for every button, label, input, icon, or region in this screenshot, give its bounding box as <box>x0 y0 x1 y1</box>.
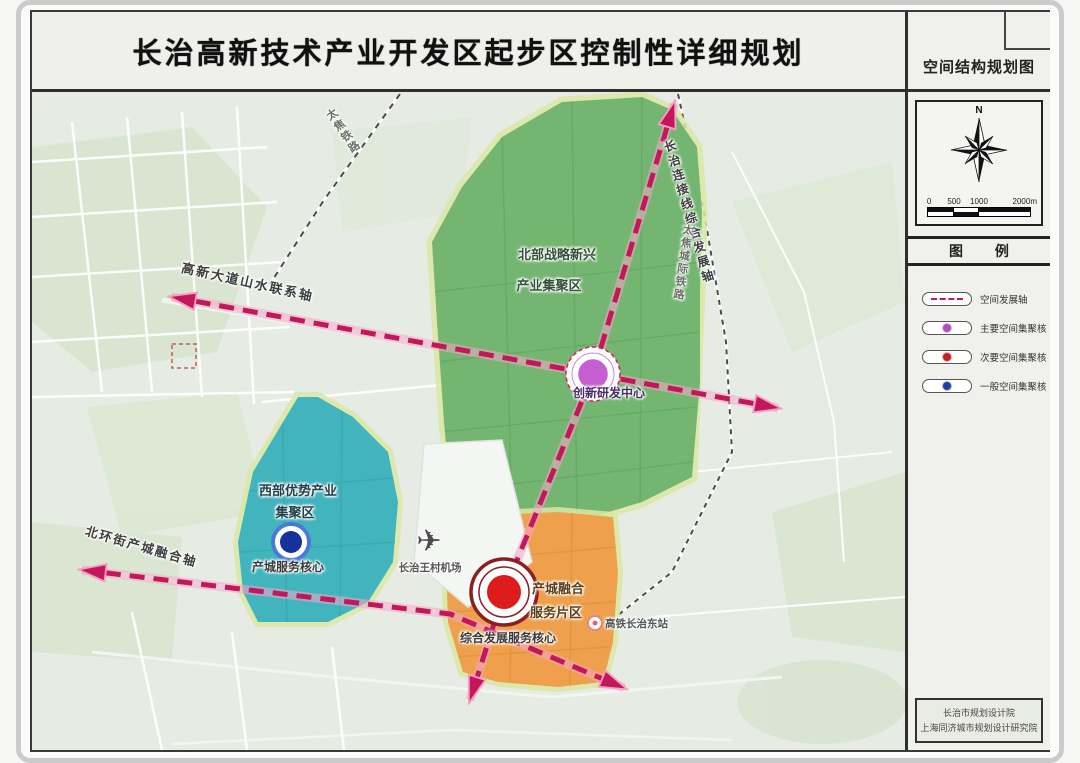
blue-dot-symbol <box>922 379 972 393</box>
map-canvas: 北部战略新兴 产业集聚区 创新研发中心 西部优势产业 集聚区 产城服务核心 产城… <box>32 92 908 750</box>
scale-tick-0: 0 <box>927 197 931 206</box>
legend-label: 空间发展轴 <box>980 292 1028 306</box>
north-zone-label-line2: 产业集聚区 <box>469 275 629 294</box>
page-title: 长治高新技术产业开发区起步区控制性详细规划 <box>132 30 804 72</box>
purple-dot-symbol <box>922 321 972 335</box>
map-name-cell: 空间结构规划图 <box>908 12 1050 92</box>
legend-item-general-core: 一般空间集聚核 <box>922 379 1040 393</box>
red-dot-symbol <box>922 350 972 364</box>
scale-bar-segments <box>927 207 1031 217</box>
city-service-core-marker <box>273 524 309 560</box>
airport-label: 长治王村机场 <box>350 560 510 575</box>
legend-title: 图 例 <box>908 236 1050 266</box>
legend-list: 空间发展轴 主要空间集聚核 次要空间集聚核 一般空间集聚核 <box>908 266 1050 393</box>
hsr-station-label: 高铁长治东站 <box>605 616 715 631</box>
credits-box: 长治市规划设计院 上海同济城市规划设计研究院 <box>915 698 1043 743</box>
legend-label: 次要空间集聚核 <box>980 350 1047 364</box>
legend-item-main-core: 主要空间集聚核 <box>922 321 1040 335</box>
legend-label: 一般空间集聚核 <box>980 379 1047 393</box>
scale-tick-500: 500 <box>947 197 960 206</box>
legend-label: 主要空间集聚核 <box>980 321 1047 335</box>
side-panel: 空间结构规划图 N 0 500 1000 20 <box>908 12 1050 750</box>
compass-rose-icon <box>947 116 1011 186</box>
map-name: 空间结构规划图 <box>923 56 1035 77</box>
legend-item-secondary-core: 次要空间集聚核 <box>922 350 1040 364</box>
map-drawing <box>32 92 905 750</box>
southeast-zone-label-line2: 服务片区 <box>496 602 616 621</box>
southeast-zone-label-line1: 产城融合 <box>498 578 618 597</box>
north-zone-label-line1: 北部战略新兴 <box>477 244 637 263</box>
dashed-axis-symbol <box>922 292 972 306</box>
north-label: N <box>975 105 982 116</box>
scale-tick-1000: 1000 <box>970 197 988 206</box>
credits-line1: 长治市规划设计院 <box>919 706 1039 720</box>
scale-tick-labels: 0 500 1000 2000m <box>927 197 1031 207</box>
scale-tick-2000: 2000m <box>1013 197 1037 206</box>
west-core-label: 产城服务核心 <box>208 558 368 575</box>
west-zone-label-line1: 西部优势产业 <box>218 480 378 499</box>
title-bar: 长治高新技术产业开发区起步区控制性详细规划 <box>32 12 908 92</box>
southeast-core-label: 综合发展服务核心 <box>428 629 588 646</box>
compass-scale-box: N 0 500 1000 2000m <box>915 100 1043 226</box>
innovation-core-label: 创新研发中心 <box>529 384 689 401</box>
legend-item-axis: 空间发展轴 <box>922 292 1040 306</box>
plan-sheet: 长治高新技术产业开发区起步区控制性详细规划 <box>30 10 1050 752</box>
titleblock-corner-box <box>1004 12 1050 50</box>
west-zone-label-line2: 集聚区 <box>215 502 375 521</box>
scale-bar: 0 500 1000 2000m <box>927 197 1031 217</box>
credits-line2: 上海同济城市规划设计研究院 <box>919 721 1039 735</box>
airplane-icon: ✈ <box>412 524 446 559</box>
